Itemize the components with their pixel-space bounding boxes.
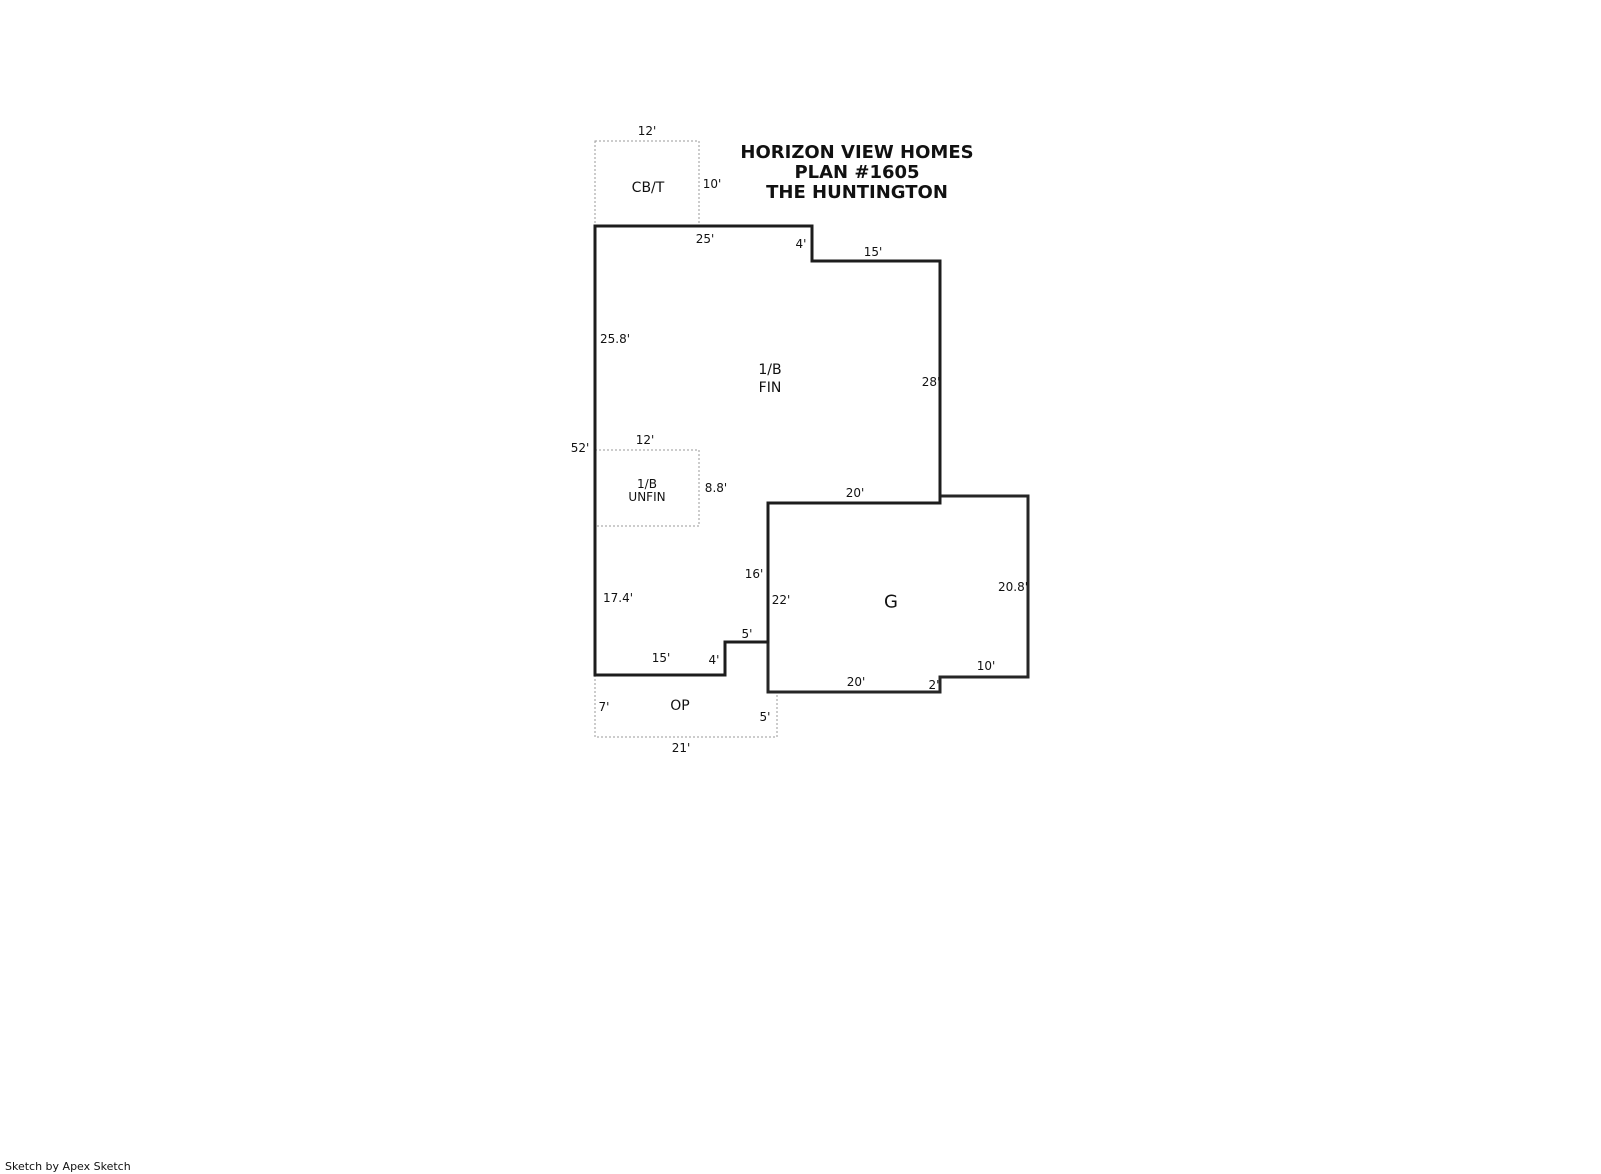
room-label-fin-line2: FIN [758, 379, 781, 397]
dim-unfin-width: 12' [636, 433, 655, 447]
room-label-unfin-line2: UNFIN [628, 491, 665, 504]
dim-main-top-step: 4' [796, 237, 807, 251]
dim-interior-step: 16' [745, 567, 764, 581]
dim-left-total: 52' [571, 441, 590, 455]
dim-right-upper: 28' [922, 375, 941, 389]
plan-title-line2: PLAN #1605 [740, 163, 973, 183]
room-label-fin-line1: 1/B [758, 361, 781, 379]
room-label-unfin: 1/B UNFIN [628, 478, 665, 504]
dim-main-top-right: 15' [864, 245, 883, 259]
dim-bottom-step: 4' [709, 653, 720, 667]
dim-op-left: 7' [599, 700, 610, 714]
room-label-op: OP [670, 698, 689, 714]
dim-garage-top: 20' [846, 486, 865, 500]
dim-garage-bottom-right: 10' [977, 659, 996, 673]
dim-op-right: 5' [760, 710, 771, 724]
room-label-fin: 1/B FIN [758, 361, 781, 397]
dim-left-upper: 25.8' [600, 332, 630, 346]
dim-garage-left: 22' [772, 593, 791, 607]
plan-title: HORIZON VIEW HOMES PLAN #1605 THE HUNTIN… [740, 143, 973, 203]
dim-cbt-width: 12' [638, 124, 657, 138]
dim-garage-right: 20.8' [998, 580, 1028, 594]
dim-cbt-height: 10' [703, 177, 722, 191]
dim-garage-bottom-step: 2' [929, 678, 940, 692]
room-label-cbt: CB/T [632, 180, 665, 196]
room-label-garage: G [884, 592, 898, 613]
plan-title-line3: THE HUNTINGTON [740, 183, 973, 203]
dim-left-lower: 17.4' [603, 591, 633, 605]
dim-notch-step: 5' [742, 627, 753, 641]
dim-unfin-height: 8.8' [705, 481, 727, 495]
dim-main-top: 25' [696, 232, 715, 246]
dim-op-bottom: 21' [672, 741, 691, 755]
dim-garage-bottom: 20' [847, 675, 866, 689]
sketch-credit: Sketch by Apex Sketch [5, 1160, 131, 1173]
plan-title-line1: HORIZON VIEW HOMES [740, 143, 973, 163]
floorplan-page: HORIZON VIEW HOMES PLAN #1605 THE HUNTIN… [0, 0, 1601, 1174]
dim-bottom-left: 15' [652, 651, 671, 665]
